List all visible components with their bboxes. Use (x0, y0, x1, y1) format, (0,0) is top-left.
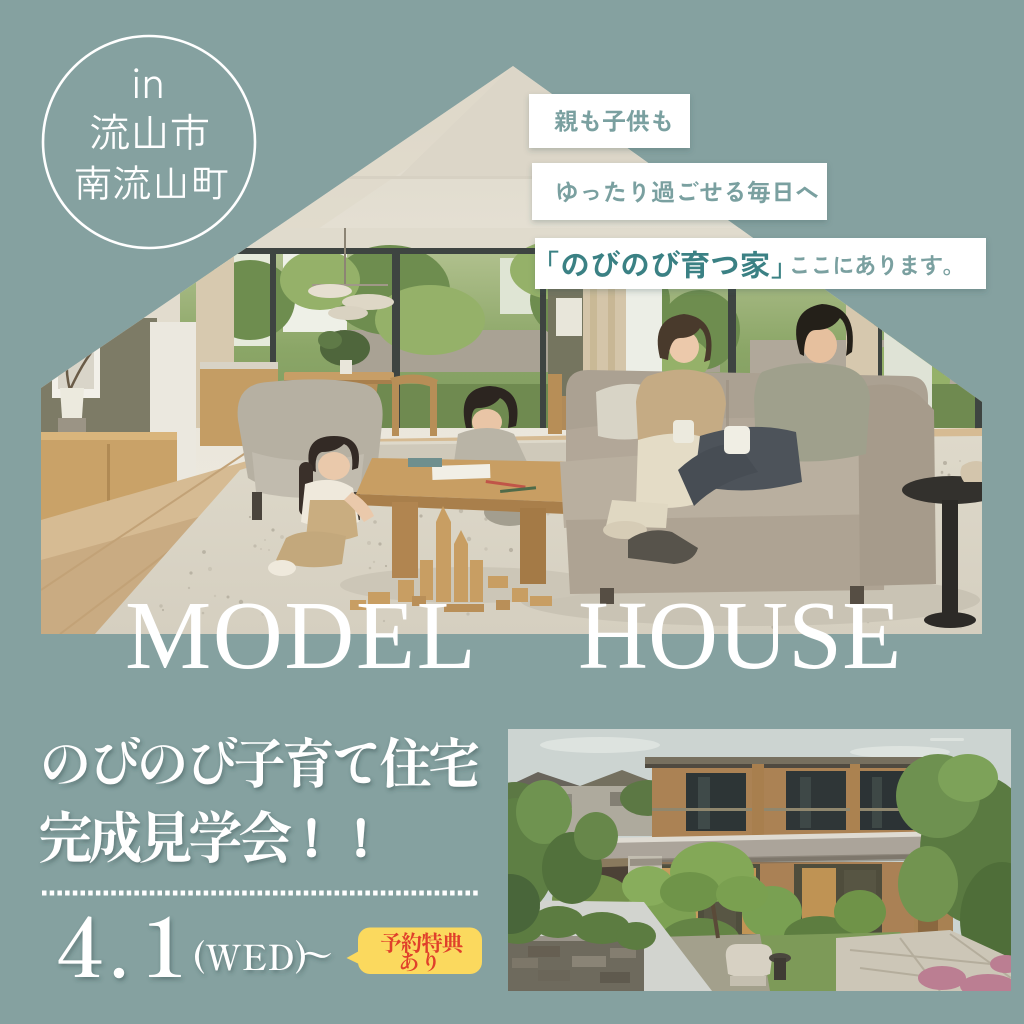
svg-text:MODEL: MODEL (125, 582, 477, 689)
svg-text:HOUSE: HOUSE (578, 582, 901, 689)
